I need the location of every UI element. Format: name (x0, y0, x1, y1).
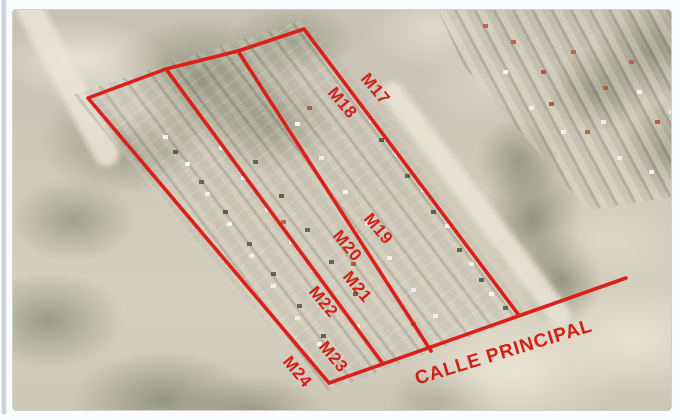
page-edge-shadow (1, 0, 7, 414)
aerial-photo: M17 M18 M19 M20 M21 M22 M23 M24 CALLE PR… (12, 9, 672, 411)
survey-overlay-lines (13, 10, 672, 411)
block-boundary-outer (88, 29, 518, 383)
document-page: M17 M18 M19 M20 M21 M22 M23 M24 CALLE PR… (0, 0, 680, 420)
